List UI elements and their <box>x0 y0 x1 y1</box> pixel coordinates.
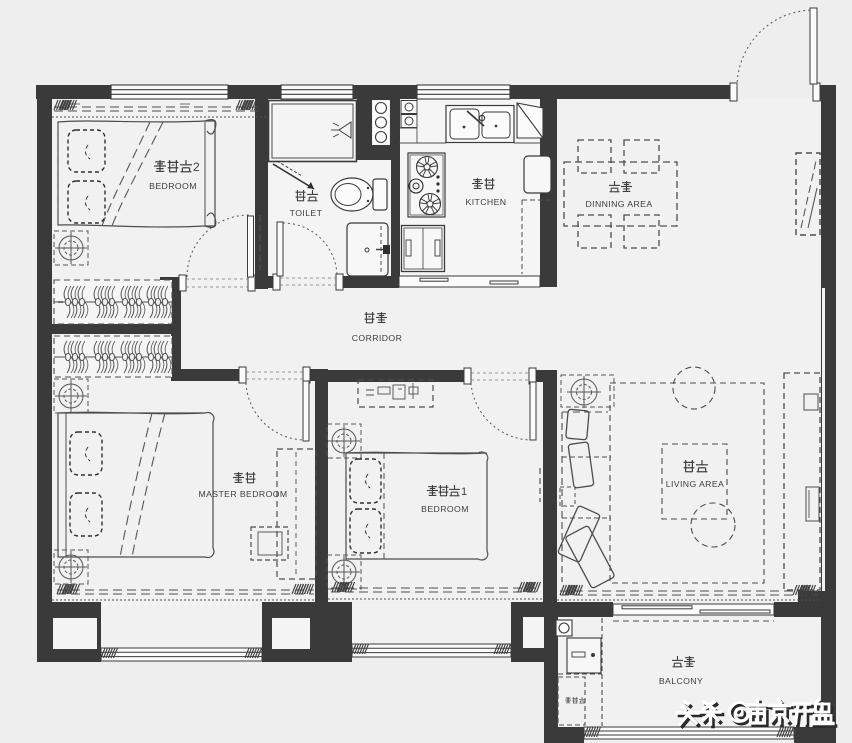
svg-text:DINNING AREA: DINNING AREA <box>585 199 652 209</box>
svg-text:CORRIDOR: CORRIDOR <box>352 333 403 343</box>
svg-text:1: 1 <box>461 486 467 498</box>
svg-text:KITCHEN: KITCHEN <box>466 197 507 207</box>
svg-text:2: 2 <box>193 160 200 174</box>
svg-text:LIVING AREA: LIVING AREA <box>666 479 724 489</box>
svg-text:BEDROOM: BEDROOM <box>421 504 469 514</box>
svg-text:TOILET: TOILET <box>290 208 323 218</box>
svg-text:BEDROOM: BEDROOM <box>149 181 197 191</box>
svg-text:BALCONY: BALCONY <box>659 676 703 686</box>
svg-text:MASTER BEDROOM: MASTER BEDROOM <box>198 489 287 499</box>
